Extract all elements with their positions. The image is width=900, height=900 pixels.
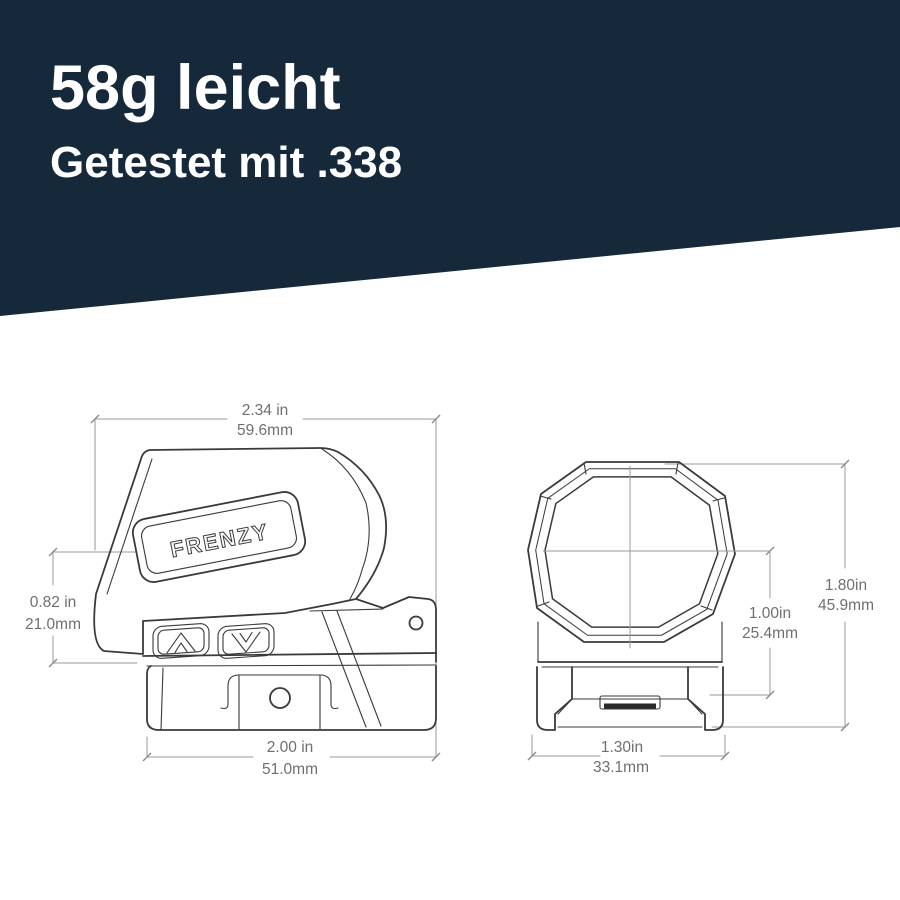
dim-height-left-in: 0.82 in [30,594,77,611]
front-view: 1.80in 45.9mm 1.00in 25.4mm 1.30in 33.1m… [528,460,874,776]
rear-screw-icon [410,617,423,630]
side-view: 2.34 in 59.6mm 0.82 in 21.0mm 2.00 in 51… [25,402,440,778]
dim-total-height-in: 1.80in [825,577,867,594]
dim-center-height-in: 1.00in [749,605,791,622]
dim-width-bottom-in: 2.00 in [267,739,314,756]
dim-width-top-in: 2.34 in [242,402,289,419]
dim-center-height-mm: 25.4mm [742,625,798,642]
side-view-body: FRENZY [94,448,436,730]
brand-logo-plate: FRENZY [130,490,307,585]
base-clamp [221,675,338,729]
dim-total-height-mm: 45.9mm [818,597,874,614]
dim-rail-width-in: 1.30in [601,739,643,756]
brightness-down-button-glyph [218,623,274,659]
dim-width-top-mm: 59.6mm [237,422,293,439]
brand-logo-text: FRENZY [168,519,271,563]
dim-rail-width-mm: 33.1mm [593,759,649,776]
side-view-dimension-lines [49,415,440,761]
dim-height-left-mm: 21.0mm [25,616,81,633]
technical-drawing: 2.34 in 59.6mm 0.82 in 21.0mm 2.00 in 51… [0,0,900,900]
front-rail-mount [537,667,723,730]
brightness-up-button-glyph [153,623,209,659]
dim-width-bottom-mm: 51.0mm [262,761,318,778]
clamp-screw-hole-icon [270,688,290,708]
front-window [528,462,770,648]
